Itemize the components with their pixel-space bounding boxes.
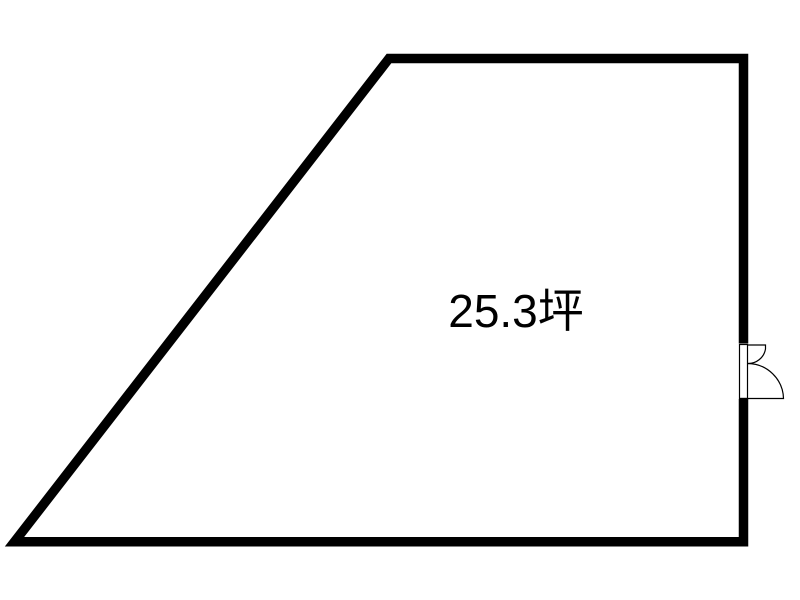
area-label: 25.3坪: [448, 285, 584, 337]
floorplan-page: 25.3坪: [0, 0, 800, 600]
door-jamb: [740, 345, 748, 399]
room-outline-walls: [15, 59, 744, 542]
floorplan-canvas: 25.3坪: [0, 0, 800, 600]
